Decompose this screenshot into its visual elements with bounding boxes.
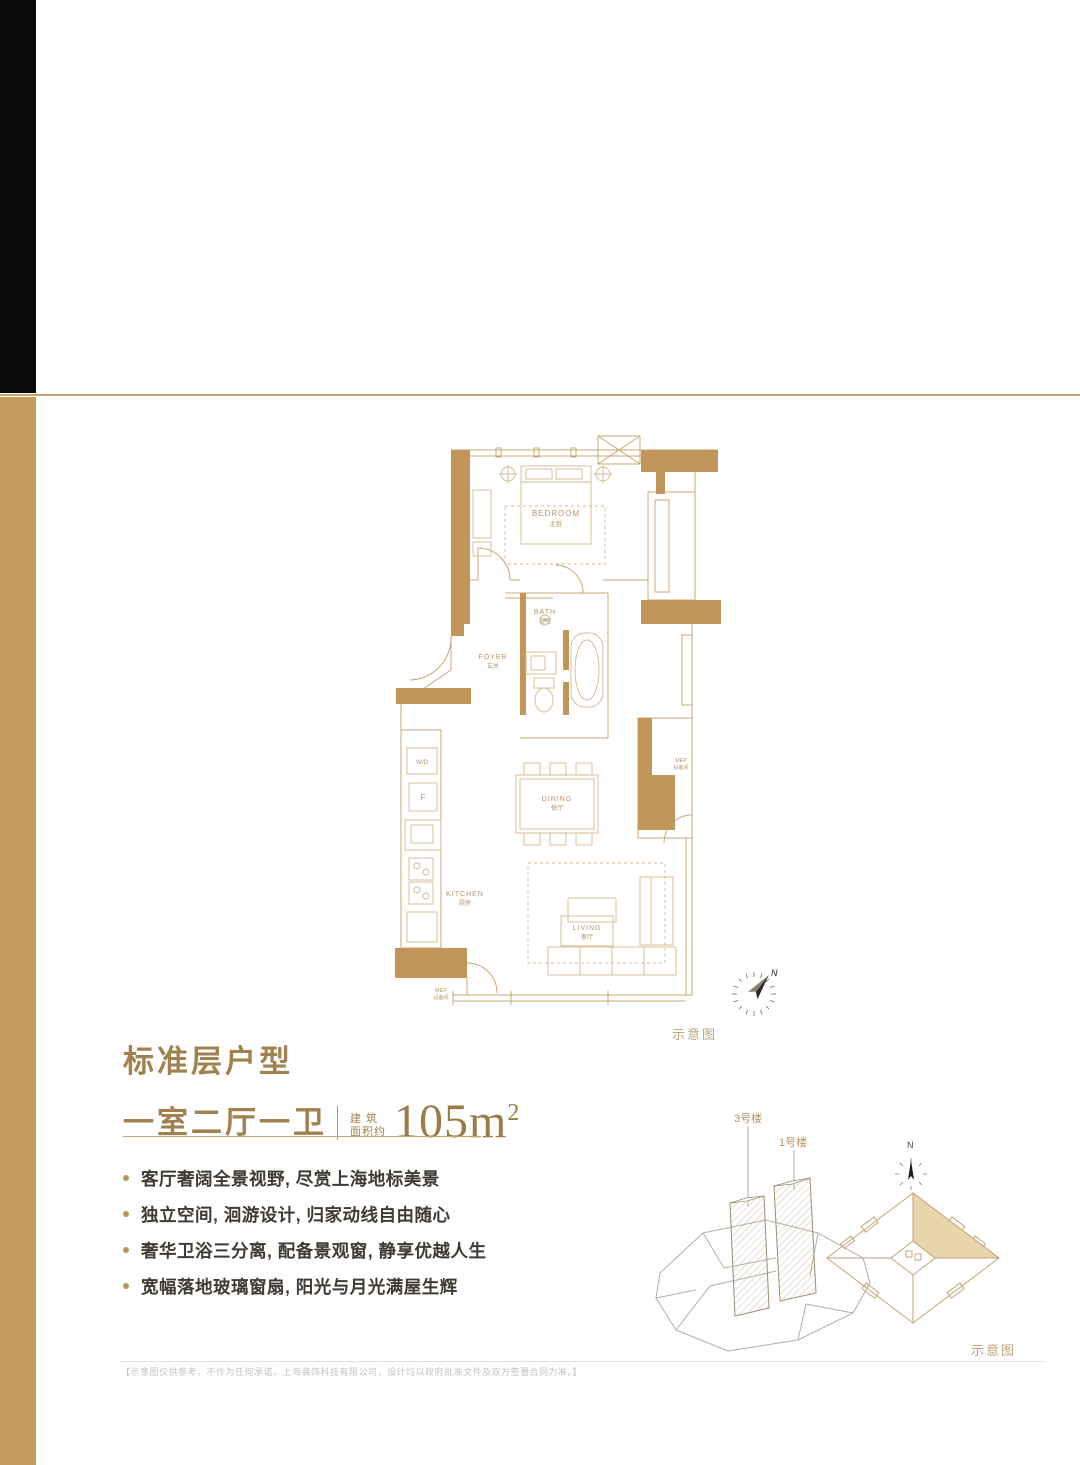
foyer-label-zh: 玄关 (487, 662, 499, 670)
compass-ticks (732, 972, 776, 1016)
living-label: LIVING (573, 925, 602, 932)
list-item: 独立空间, 洄游设计, 归家动线自由随心 (123, 1196, 603, 1232)
mep-label: MEP (675, 758, 687, 764)
feature-text: 客厅奢阔全景视野, 尽赏上海地标美景 (141, 1166, 440, 1191)
list-item: 奢华卫浴三分离, 配备景观窗, 静享优越人生 (123, 1232, 603, 1268)
page-title: 标准层户型 (123, 1036, 520, 1081)
disclaimer-text: 【示意图仅供参考，不作为任何承诺。上海装饰科技有限公司，设计均以政府批准文件及双… (121, 1365, 1021, 1378)
foyer-label: FOYER (478, 654, 507, 661)
bath-label: BATH (534, 609, 556, 616)
washer-dryer-label: W/D (416, 760, 428, 766)
towers (730, 1178, 816, 1316)
fridge-label: F (421, 793, 426, 802)
vertical-separator (337, 1106, 338, 1140)
bullet-dot-icon (123, 1175, 129, 1181)
living-label-zh: 客厅 (581, 933, 593, 941)
feature-text: 宽幅落地玻璃窗扇, 阳光与月光满屋生辉 (141, 1274, 458, 1299)
bullet-dot-icon (123, 1211, 129, 1217)
dining-label-zh: 餐厅 (551, 804, 563, 812)
floor-plan-drawing: BEDROOM 主卧 BATH 浴室 FOYER 玄关 DINING 餐厅 LI… (393, 430, 765, 1035)
plate-compass-n-label: N (907, 1140, 914, 1150)
furniture (405, 465, 676, 975)
area-label-line2: 面积约 (350, 1126, 386, 1139)
kitchen-label-zh: 厨房 (459, 899, 471, 907)
area-label-line1: 建 筑 (350, 1113, 386, 1126)
feature-text: 奢华卫浴三分离, 配备景观窗, 静享优越人生 (141, 1238, 486, 1263)
tower-1-label: 1号楼 (779, 1135, 807, 1149)
brochure-page: BEDROOM 主卧 BATH 浴室 FOYER 玄关 DINING 餐厅 LI… (0, 0, 1080, 1465)
site-diagram-caption: 示意图 (971, 1340, 1016, 1359)
title-divider (123, 1136, 481, 1137)
floor-plate-diagram: N (823, 1136, 1053, 1361)
bullet-dot-icon (123, 1283, 129, 1289)
compass-needle (748, 971, 773, 999)
dining-label: DINING (542, 796, 573, 803)
floor-plan: BEDROOM 主卧 BATH 浴室 FOYER 玄关 DINING 餐厅 LI… (393, 430, 765, 1035)
gold-horizontal-rule (0, 394, 1080, 396)
footer-divider (120, 1361, 1045, 1362)
list-item: 宽幅落地玻璃窗扇, 阳光与月光满屋生辉 (123, 1268, 603, 1304)
mep-label-zh: 设备间 (673, 764, 688, 771)
floor-plan-caption: 示意图 (672, 1024, 717, 1043)
mep2-label-zh: 设备间 (433, 994, 448, 1001)
feature-text: 独立空间, 洄游设计, 归家动线自由随心 (141, 1202, 450, 1227)
bath-label-zh: 浴室 (539, 617, 551, 625)
tower-3-label: 3号楼 (734, 1111, 762, 1125)
bedroom-label-zh: 主卧 (550, 519, 564, 528)
top-left-black-bar (0, 0, 36, 393)
mep2-label: MEP (435, 988, 447, 994)
thick-walls (395, 450, 721, 978)
compass-n-label: N (771, 968, 778, 978)
bullet-dot-icon (123, 1247, 129, 1253)
area-superscript: 2 (507, 1100, 520, 1126)
list-item: 客厅奢阔全景视野, 尽赏上海地标美景 (123, 1160, 603, 1196)
highlighted-unit (913, 1193, 999, 1258)
title-block: 标准层户型 一室二厅一卫 建 筑 面积约 105m2 (123, 1036, 520, 1142)
floor-plan-compass: N (722, 962, 786, 1026)
area-number: 105m (394, 1095, 507, 1148)
bedroom-label: BEDROOM (532, 509, 580, 518)
left-gold-bar (0, 397, 36, 1465)
kitchen-label: KITCHEN (446, 891, 484, 898)
plate-compass-needle (908, 1160, 914, 1180)
feature-list: 客厅奢阔全景视野, 尽赏上海地标美景 独立空间, 洄游设计, 归家动线自由随心 … (123, 1160, 603, 1304)
